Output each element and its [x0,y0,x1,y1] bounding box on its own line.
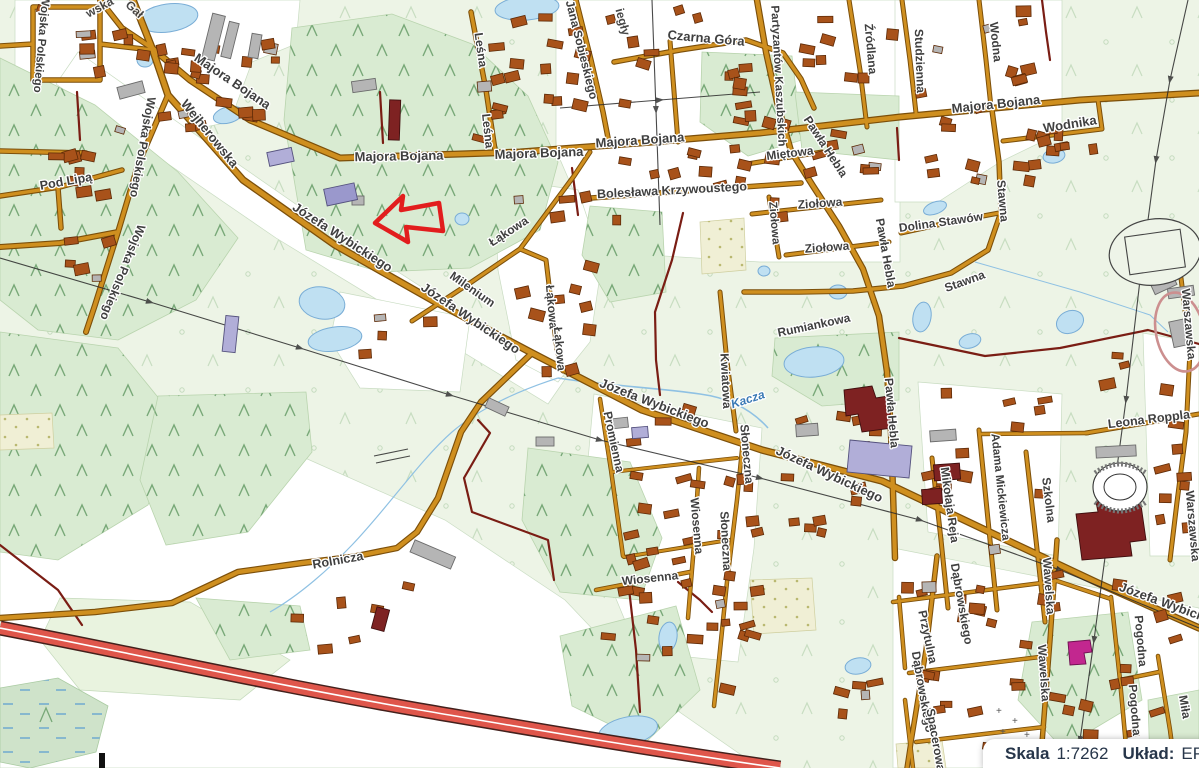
crs-value: EPS [1181,744,1199,764]
building [699,166,712,177]
building [544,94,554,103]
building [851,496,862,506]
building [158,112,171,122]
building [559,195,575,203]
building [816,55,826,64]
street-label: Studzienna [912,29,928,94]
building [646,547,658,556]
scale-label: Skala [1005,744,1049,764]
edge-tick [99,753,105,768]
building [730,145,740,154]
scale-value: 1:7262 [1056,744,1108,764]
building [540,64,551,74]
building [712,585,725,596]
building [637,654,650,661]
stadium [1093,463,1147,511]
building [514,196,524,204]
svg-text:+: + [996,706,1002,717]
building [619,157,632,166]
building [739,63,753,72]
crs-label: Układ: [1122,744,1174,764]
building [1160,384,1174,397]
building [1028,159,1041,170]
building [927,168,940,177]
building [49,153,65,160]
building [95,189,112,201]
map-statusbar: Skala 1:7262 Układ: EPS [983,739,1199,768]
street-label: Majora Bojana [354,148,444,165]
building [638,503,652,514]
building [1172,444,1183,455]
building [136,49,150,61]
building [378,331,387,340]
building [1026,129,1037,141]
building [1016,6,1031,17]
building [1109,679,1120,690]
building [627,36,639,48]
building [733,77,747,90]
building [1034,405,1045,415]
building [1180,481,1190,490]
building [73,263,90,276]
map-canvas[interactable]: ++ ++ Wojska PolskiegoWojska PolskiegoWo… [0,0,1199,768]
building [838,709,847,719]
building [1060,142,1070,150]
street-label: Kwiatowa [717,353,734,409]
building [988,544,1000,555]
building [662,646,672,655]
building [861,690,870,700]
building [818,16,833,23]
building [601,633,616,641]
building [181,48,195,56]
building [261,38,275,50]
building [566,73,579,85]
building [750,585,765,596]
building [271,57,279,63]
building [337,597,347,609]
building [690,480,705,489]
building [721,619,730,626]
building [359,349,372,359]
building [510,58,524,69]
building [844,73,857,83]
building [242,56,253,67]
building [630,471,643,480]
building [781,474,794,482]
building [1112,352,1124,359]
building [746,516,760,527]
building [649,169,659,179]
building [542,367,552,377]
building [817,528,827,538]
building [93,66,105,79]
building [976,585,985,594]
map-viewport: ++ ++ Wojska PolskiegoWojska PolskiegoWo… [0,0,1199,768]
building [1012,682,1025,690]
building [886,29,898,41]
building [291,614,304,622]
building [92,275,101,282]
building [639,592,652,603]
building [707,623,718,631]
building [156,43,167,56]
building [1018,18,1027,26]
building [687,634,703,644]
building [80,44,95,55]
building [647,615,659,624]
building [922,582,936,593]
building [1063,705,1075,716]
street-label: Majora Bojana [494,144,584,162]
building [477,81,492,92]
building [539,14,553,21]
building [216,97,232,108]
building [1155,514,1165,525]
svg-text:+: + [1012,716,1018,727]
building [933,45,943,53]
building [76,31,91,38]
building [76,186,93,198]
building [613,215,621,225]
building [655,418,671,425]
building [971,177,980,185]
building [1177,472,1192,481]
building [619,99,632,108]
building [164,62,178,74]
building [956,448,969,458]
building [1024,175,1036,187]
building [901,582,913,593]
building [745,110,756,121]
building [715,599,725,608]
building [724,571,736,581]
building [681,578,692,588]
building [852,681,866,689]
building [1011,422,1024,432]
svg-text:+: + [1000,727,1006,738]
building [238,107,253,118]
building [941,124,955,132]
building [374,314,386,322]
building [580,191,592,203]
building [1020,640,1033,649]
building [489,43,505,52]
building [550,211,566,223]
building [318,644,333,654]
building [1089,144,1098,155]
building [734,602,747,610]
building [64,237,78,246]
building [423,317,437,327]
building [863,167,879,174]
building [941,388,952,398]
building [789,518,800,526]
building [644,49,659,56]
building [813,515,827,526]
building [803,59,815,67]
building [1013,161,1030,172]
building [1120,664,1131,673]
building [583,324,597,336]
building [1159,494,1171,503]
